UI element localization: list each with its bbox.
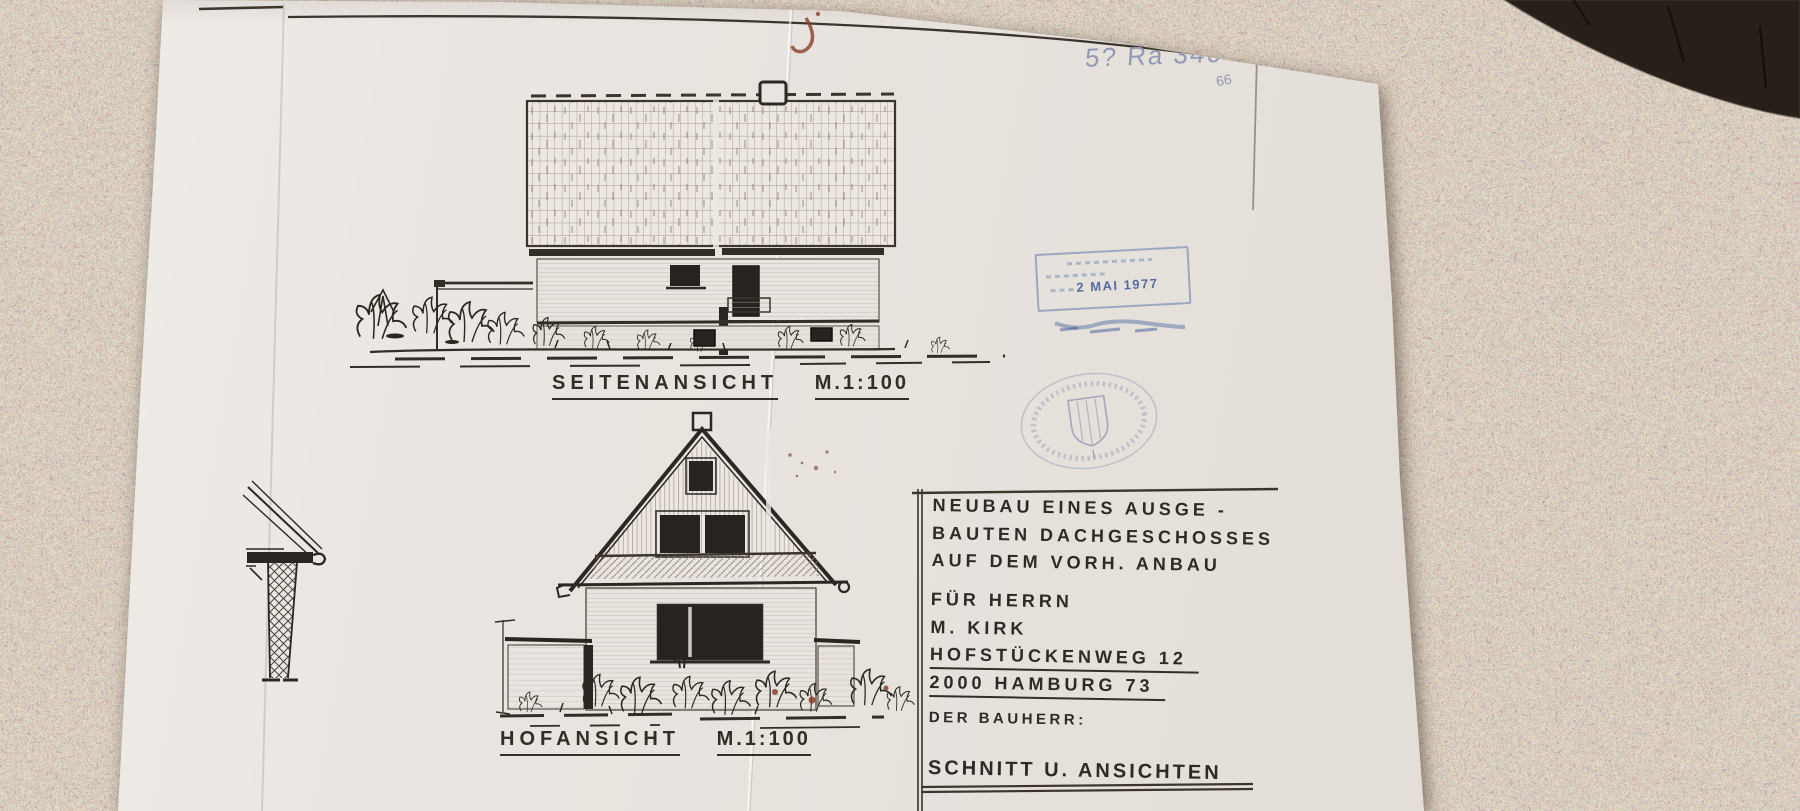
title-block: NEUBAU EINES AUSGE - BAUTEN DACHGESCHOSS… (927, 491, 1277, 811)
floor-band-line (537, 321, 879, 323)
front-view-label: HOFANSICHT M.1:100 (500, 728, 811, 756)
attic-window (686, 458, 716, 494)
rust-spot (884, 686, 889, 691)
project-line-2: BAUTEN DACHGESCHOSSES (932, 523, 1274, 550)
photo-of-architectural-drawing: BLATT 2 5? Ra 3464 66 SEITENANSICHT M.1:… (0, 0, 1800, 811)
front-view-drawing (495, 413, 914, 728)
rust-spot (772, 689, 778, 695)
paper-sheet-wrap: BLATT 2 5? Ra 3464 66 SEITENANSICHT M.1:… (0, 0, 1800, 811)
sheet-title: SCHNITT U. ANSICHTEN (928, 757, 1222, 785)
side-view-drawing (350, 82, 1005, 367)
stamp-faint-text-row (1046, 272, 1106, 278)
stamp-faint-text-row (1050, 288, 1074, 292)
signature-label: DER BAUHERR: (929, 709, 1087, 729)
blue-signature-scribble (1055, 321, 1185, 332)
main-window (650, 605, 770, 668)
side-view-scale: M.1:100 (815, 372, 909, 400)
gutter-section (313, 554, 325, 565)
handwritten-note: 66 (1215, 71, 1233, 89)
address-line-1: HOFSTÜCKENWEG 12 (930, 644, 1199, 674)
project-line-1: NEUBAU EINES AUSGE - (932, 495, 1228, 521)
project-line-3: AUF DEM VORH. ANBAU (931, 550, 1221, 576)
roof-fold-gap (713, 100, 719, 248)
handwritten-reference: 5? Ra 3464 (1084, 37, 1241, 73)
client-line-2: M. KIRK (930, 617, 1027, 640)
eave-band (529, 248, 884, 256)
stamp-date: 2 MAI 1977 (1076, 276, 1159, 295)
garden-wall-right (814, 640, 860, 706)
rust-dot (816, 12, 820, 16)
side-view-label: SEITENANSICHT M.1:100 (552, 372, 909, 400)
ground-lines-front (500, 714, 884, 728)
section-detail (243, 481, 325, 680)
chimney (760, 82, 786, 104)
upper-wall (537, 259, 879, 322)
garden-wall-left (505, 639, 593, 709)
roof-ridge-dashes (531, 94, 894, 96)
rust-spot (809, 697, 816, 704)
front-view-scale: M.1:100 (717, 728, 811, 756)
date-stamp: 2 MAI 1977 (1035, 246, 1192, 312)
round-official-seal (1015, 365, 1163, 477)
ground-lines-side (350, 349, 1005, 367)
client-line-1: FÜR HERRN (931, 589, 1073, 612)
age-spots (788, 450, 836, 477)
sheet-number: BLATT 2 (1100, 23, 1185, 41)
address-line-2: 2000 HAMBURG 73 (929, 672, 1165, 701)
drawing-linework (0, 0, 1800, 811)
beam (247, 552, 313, 563)
eave-fascia-band (558, 553, 848, 585)
paper-sheet: BLATT 2 5? Ra 3464 66 SEITENANSICHT M.1:… (0, 0, 1800, 811)
roof (527, 100, 895, 248)
window-upper (666, 265, 706, 288)
stamp-faint-text-row (1067, 258, 1152, 265)
front-view-title: HOFANSICHT (500, 728, 680, 756)
side-view-title: SEITENANSICHT (552, 372, 778, 400)
